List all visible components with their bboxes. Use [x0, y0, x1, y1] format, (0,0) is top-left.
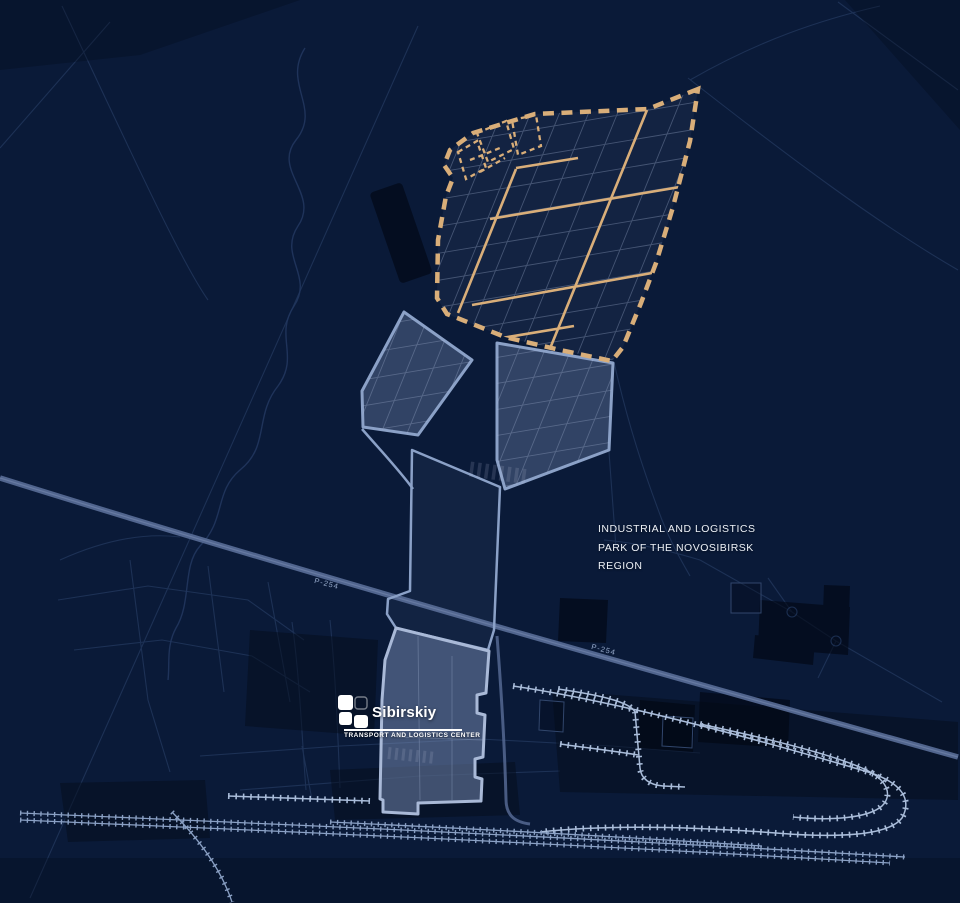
title-line-2: PARK OF THE NOVOSIBIRSK [598, 539, 788, 558]
building-outline [731, 583, 761, 613]
map-stage: P-254 P-254 INDUSTRIAL AND LOGISTICS PAR… [0, 0, 960, 903]
dark-strip-bottom [0, 858, 960, 903]
logo-subtitle: TRANSPORT AND LOGISTICS CENTER [344, 732, 466, 739]
logo-title: Sibirskiy [372, 704, 436, 721]
logo-cubes-icon [337, 690, 373, 732]
map-canvas: P-254 P-254 [0, 0, 960, 903]
title-line-3: REGION [598, 557, 788, 576]
title-line-1: INDUSTRIAL AND LOGISTICS [598, 520, 788, 539]
logo-sibirskiy: Sibirskiy TRANSPORT AND LOGISTICS CENTER [334, 686, 464, 744]
logo-divider [344, 729, 462, 731]
map-annotation-title: INDUSTRIAL AND LOGISTICS PARK OF THE NOV… [598, 520, 788, 576]
